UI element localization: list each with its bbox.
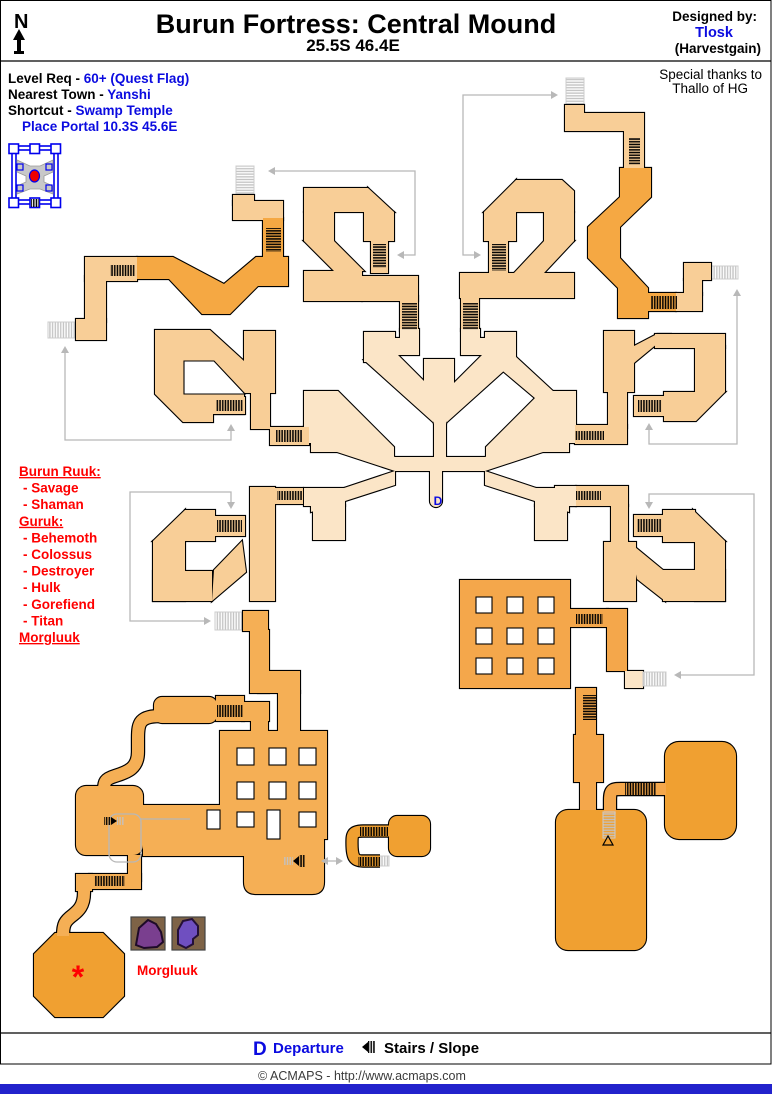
svg-text:N: N [14,11,28,33]
svg-text:(Harvestgain): (Harvestgain) [675,41,761,56]
svg-text:*: * [72,959,85,995]
svg-text:- Colossus: - Colossus [23,547,92,562]
svg-text:Thallo of HG: Thallo of HG [672,81,748,96]
svg-text:- Hulk: - Hulk [23,580,61,595]
svg-text:Special thanks to: Special thanks to [659,67,762,82]
svg-text:Place Portal 10.3S 45.6E: Place Portal 10.3S 45.6E [22,119,177,134]
svg-text:- Shaman: - Shaman [23,497,84,512]
svg-text:- Savage: - Savage [23,481,79,496]
svg-text:© ACMAPS - http://www.acmaps.c: © ACMAPS - http://www.acmaps.com [258,1069,466,1083]
svg-text:Morgluuk: Morgluuk [19,630,80,645]
svg-text:D: D [253,1039,267,1060]
svg-text:- Behemoth: - Behemoth [23,530,97,545]
svg-text:Shortcut - Swamp Temple: Shortcut - Swamp Temple [8,103,173,118]
svg-text:- Destroyer: - Destroyer [23,564,95,579]
svg-text:Burun Ruuk:: Burun Ruuk: [19,464,101,479]
svg-text:Guruk:: Guruk: [19,514,63,529]
svg-text:D: D [434,494,443,508]
svg-text:Stairs / Slope: Stairs / Slope [384,1040,479,1057]
svg-text:Tlosk: Tlosk [695,25,734,41]
svg-text:25.5S 46.4E: 25.5S 46.4E [306,36,400,55]
svg-text:Burun Fortress: Central Mound: Burun Fortress: Central Mound [156,9,557,39]
svg-text:Morgluuk: Morgluuk [137,963,198,978]
svg-text:Departure: Departure [273,1040,344,1057]
svg-text:Nearest Town - Yanshi: Nearest Town - Yanshi [8,87,151,102]
svg-text:Designed by:: Designed by: [672,9,757,24]
svg-text:Level Req - 60+ (Quest Flag): Level Req - 60+ (Quest Flag) [8,71,189,86]
svg-text:- Gorefiend: - Gorefiend [23,597,95,612]
svg-text:- Titan: - Titan [23,613,63,628]
